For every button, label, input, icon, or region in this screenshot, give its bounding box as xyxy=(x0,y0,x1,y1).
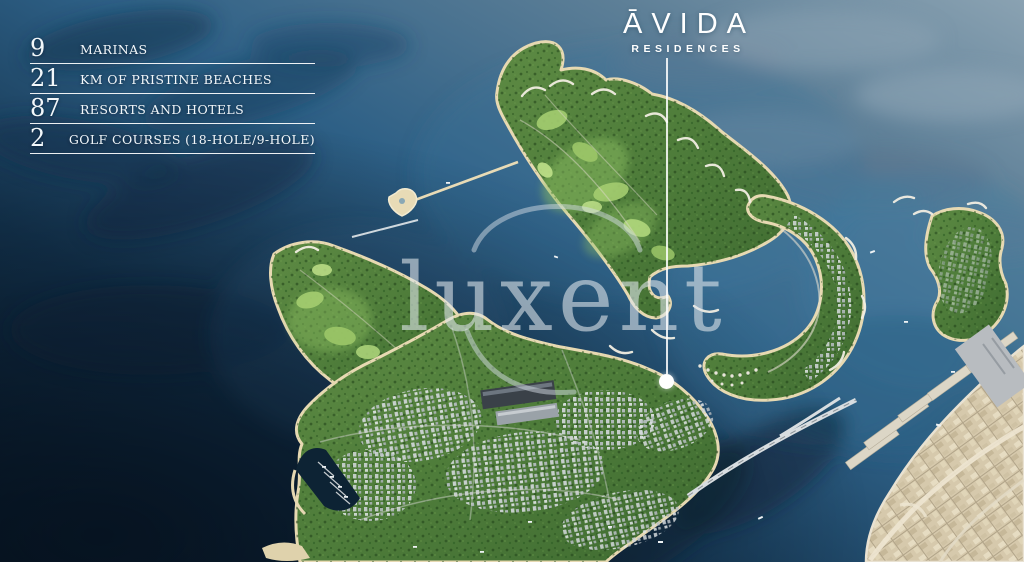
stat-value: 21 xyxy=(30,65,80,91)
stat-row-resorts: 87 RESORTS AND HOTELS xyxy=(30,94,315,124)
avida-subtitle: RESIDENCES xyxy=(604,43,772,55)
stat-label: KM OF PRISTINE BEACHES xyxy=(80,72,272,87)
avida-wordmark: ĀVIDA xyxy=(606,8,772,40)
aerial-masterplan-screen: 9 MARINAS 21 KM OF PRISTINE BEACHES 87 R… xyxy=(0,0,1024,562)
stats-panel: 9 MARINAS 21 KM OF PRISTINE BEACHES 87 R… xyxy=(30,34,315,154)
stat-row-beaches: 21 KM OF PRISTINE BEACHES xyxy=(30,64,315,94)
stat-label: RESORTS AND HOTELS xyxy=(80,102,244,117)
stat-label: MARINAS xyxy=(80,42,148,57)
stat-label: GOLF COURSES (18-HOLE/9-HOLE) xyxy=(69,132,315,147)
stat-row-marinas: 9 MARINAS xyxy=(30,34,315,64)
avida-logo: ĀVIDA RESIDENCES xyxy=(600,8,772,55)
right-island xyxy=(926,209,1007,341)
stat-value: 87 xyxy=(30,95,80,121)
location-marker-line xyxy=(666,58,668,374)
location-marker-dot xyxy=(659,374,674,389)
stat-value: 2 xyxy=(30,125,69,151)
stat-value: 9 xyxy=(30,35,80,61)
stat-row-golf: 2 GOLF COURSES (18-HOLE/9-HOLE) xyxy=(30,124,315,154)
